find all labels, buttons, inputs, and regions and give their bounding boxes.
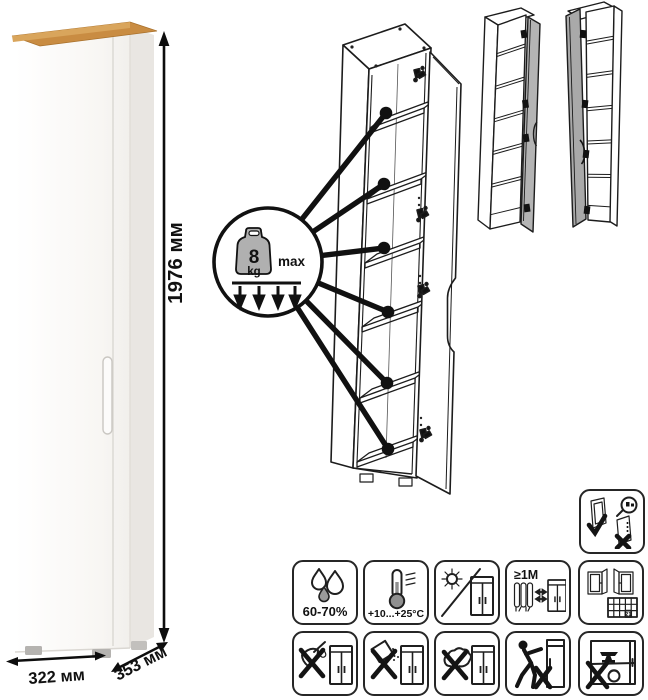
icon-no-pushing [505, 631, 571, 696]
gray-door [566, 9, 586, 227]
radiator-icon [515, 583, 533, 611]
calendar-day: 21 [625, 612, 631, 618]
door-handle-groove [103, 357, 112, 434]
cabinet-side-face [130, 27, 154, 648]
dimension-height: 1976 мм [159, 31, 187, 643]
distance-label: ≥1М [514, 568, 538, 582]
height-label: 1976 мм [164, 222, 187, 304]
dimension-width: 322 мм [6, 652, 106, 688]
anvil-icon [600, 652, 618, 663]
product-sheet: 1976 мм 322 мм 353 мм [0, 0, 648, 700]
check-mark [589, 516, 605, 533]
cabinet-foot [25, 646, 42, 655]
icon-no-overload [578, 631, 644, 696]
load-qualifier: max [278, 254, 306, 269]
person-icon [517, 640, 541, 687]
open-windows-icon [588, 569, 633, 594]
door-variant-right-hinged [478, 8, 540, 232]
water-drop-icon [327, 571, 343, 594]
icon-hinge-adjustment [579, 489, 645, 554]
shelf-load-badge: 8 kg max [214, 208, 322, 316]
wardrobe-icon [401, 646, 423, 684]
door-variant-left-hinged [566, 2, 622, 227]
kettlebell-icon [609, 670, 620, 681]
cabinet-open-diagram [331, 24, 461, 494]
icon-heat-distance: ≥1М [505, 560, 571, 625]
icon-no-abrasives [363, 631, 429, 696]
wardrobe-icon [330, 646, 352, 684]
width-label: 322 мм [28, 666, 86, 688]
load-unit: kg [247, 266, 260, 278]
icon-no-wet-cleaning [434, 631, 500, 696]
cabinet-photo [12, 22, 157, 658]
icon-avoid-sunlight [434, 560, 500, 625]
icon-temperature: +10...+25°C [363, 560, 429, 625]
icon-humidity: 60-70% [292, 560, 358, 625]
distance-arrows [536, 589, 546, 600]
icon-ventilation: 21 [578, 560, 644, 625]
load-value: 8 [249, 247, 260, 268]
wardrobe-icon [548, 580, 566, 611]
wardrobe-icon [547, 640, 564, 687]
x-mark [373, 651, 395, 677]
cabinet-foot [131, 641, 147, 650]
icon-no-sharp-tools [292, 631, 358, 696]
wardrobe-icon [472, 646, 494, 684]
temperature-range: +10...+25°C [368, 608, 424, 620]
humidity-range: 60-70% [303, 604, 348, 619]
sun-icon [447, 574, 457, 584]
calendar-icon [608, 598, 637, 617]
wardrobe-icon [471, 577, 493, 615]
